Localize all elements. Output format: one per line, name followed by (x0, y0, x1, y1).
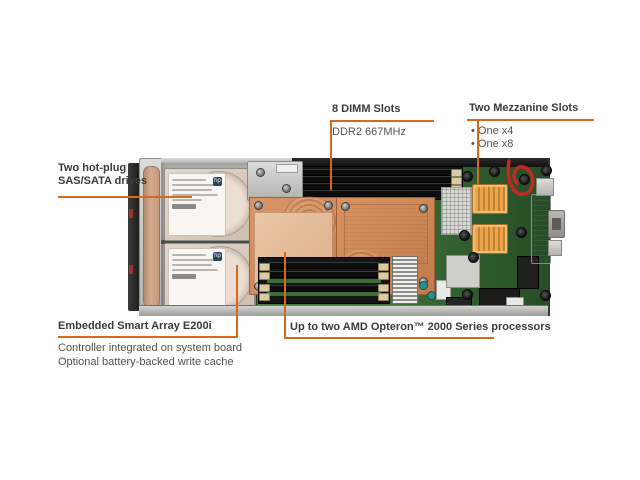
leader-underline-mezzanine (467, 119, 594, 121)
dimm-latch (259, 263, 270, 271)
drive-bottom: hp (164, 243, 255, 313)
callout-smart-array-detail1: Controller integrated on system board (58, 341, 242, 355)
bracket-tab (276, 164, 298, 173)
dimm-slot (302, 183, 452, 190)
bracket-screw (282, 184, 291, 193)
connector-pin (129, 209, 133, 218)
connector-pin (129, 265, 133, 274)
dimm-slot (302, 190, 452, 197)
drive-top: hp (164, 168, 255, 241)
dimm-latch (378, 284, 389, 292)
dimm-latch (259, 293, 270, 301)
callout-smart-array: Embedded Smart Array E200i (58, 320, 212, 333)
heatsink-plate (344, 204, 428, 264)
mezzanine-socket-grid (441, 187, 472, 235)
callout-smart-array-title: Embedded Smart Array E200i (58, 320, 212, 333)
capacitor (427, 291, 436, 300)
label-text-line (172, 189, 212, 191)
callout-processors: Up to two AMD Opteron™ 2000 Series proce… (290, 321, 551, 334)
dimm-latch (451, 169, 462, 177)
standoff (462, 171, 473, 182)
callout-drives-line2: SAS/SATA drives (58, 175, 147, 188)
drive-label: hp (168, 248, 226, 308)
standoff (540, 290, 551, 301)
dimm-bank-bottom (258, 257, 390, 304)
dimm-latch (378, 293, 389, 301)
label-text-line (172, 179, 206, 181)
callout-mezzanine-title: Two Mezzanine Slots (469, 102, 578, 115)
label-text-line (172, 199, 202, 201)
heatsink-screw (341, 202, 350, 211)
chipset-heatsink-fins (392, 256, 418, 304)
rear-port-lower (548, 240, 562, 256)
standoff (468, 252, 479, 263)
leader-line-mezzanine (477, 119, 479, 185)
callout-drives-line1: Two hot-plug (58, 162, 147, 175)
rear-port-upper (536, 178, 554, 196)
vga-inner (552, 218, 561, 230)
callout-mezzanine: Two Mezzanine Slots (469, 102, 578, 115)
dimm-slot (302, 169, 452, 176)
heatsink-screw (254, 201, 263, 210)
mezzanine-connector-2 (472, 224, 508, 254)
label-cert-icons (172, 204, 196, 209)
standoff (462, 289, 473, 300)
capacitor (419, 281, 428, 290)
figure-canvas: hp hp (0, 0, 640, 480)
dimm-latch (259, 272, 270, 280)
drive-label: hp (168, 173, 226, 236)
callout-smart-array-detail2: Optional battery-backed write cache (58, 355, 233, 369)
heatsink-screw (419, 204, 428, 213)
blade-photo: hp hp (0, 0, 640, 480)
heatsink-screw (324, 201, 333, 210)
callout-dimm-subtitle: DDR2 667MHz (332, 125, 406, 139)
label-text-line (172, 264, 212, 266)
leader-line-drives (58, 196, 192, 198)
dimm-latch (451, 177, 462, 185)
leader-underline-dimm (330, 120, 434, 122)
dimm-latch (259, 284, 270, 292)
vga-connector (548, 210, 565, 238)
leader-line-processors (284, 252, 286, 339)
callout-processors-title: Up to two AMD Opteron™ 2000 Series proce… (290, 321, 551, 334)
hp-logo: hp (213, 252, 222, 261)
leader-underline-smart-array (58, 336, 238, 338)
mounting-bracket (247, 161, 303, 201)
dimm-slot (302, 176, 452, 183)
dimm-latch (378, 263, 389, 271)
standoff (516, 227, 527, 238)
bracket-screw (256, 168, 265, 177)
callout-dimm-title: 8 DIMM Slots (332, 103, 400, 116)
standoff (489, 166, 500, 177)
standoff (459, 230, 470, 241)
bottom-rail (139, 305, 548, 316)
label-text-line (172, 259, 216, 261)
standoff (541, 165, 552, 176)
dimm-bank-top (291, 166, 463, 200)
leader-underline-processors (284, 337, 494, 339)
leader-line-smart-array (236, 265, 238, 338)
label-text-line (172, 184, 216, 186)
hp-logo: hp (213, 177, 222, 186)
label-text-line (172, 269, 218, 271)
dimm-latch (378, 272, 389, 280)
callout-dimm: 8 DIMM Slots (332, 103, 400, 116)
label-text-line (172, 254, 206, 256)
leader-line-dimm (330, 120, 332, 190)
callout-drives: Two hot-plug SAS/SATA drives (58, 162, 147, 188)
label-cert-icons (172, 274, 196, 279)
